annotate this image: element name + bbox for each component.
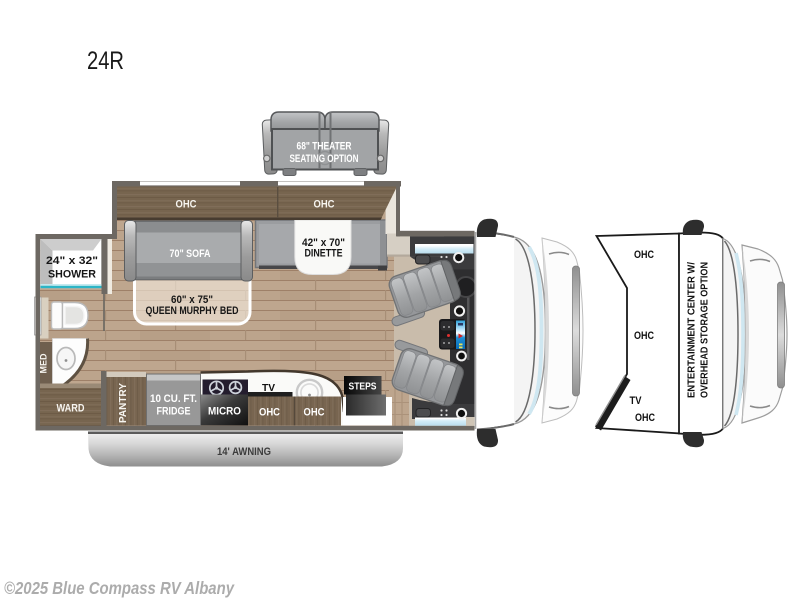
svg-text:TV: TV bbox=[262, 382, 275, 394]
svg-text:MED: MED bbox=[39, 353, 50, 373]
svg-text:OHC: OHC bbox=[304, 407, 325, 419]
svg-text:WARD: WARD bbox=[57, 403, 85, 415]
svg-text:OHC: OHC bbox=[634, 249, 654, 261]
svg-text:TV: TV bbox=[630, 395, 643, 407]
svg-text:OVERHEAD STORAGE OPTION: OVERHEAD STORAGE OPTION bbox=[699, 262, 711, 398]
svg-text:STEPS: STEPS bbox=[349, 381, 377, 393]
svg-text:OHC: OHC bbox=[314, 199, 335, 211]
svg-text:PANTRY: PANTRY bbox=[117, 383, 129, 423]
svg-text:68" THEATER: 68" THEATER bbox=[297, 141, 352, 153]
svg-text:ENTERTAINMENT CENTER W/: ENTERTAINMENT CENTER W/ bbox=[686, 262, 698, 398]
svg-text:DINETTE: DINETTE bbox=[305, 248, 343, 260]
svg-text:OHC: OHC bbox=[259, 407, 280, 419]
svg-text:SHOWER: SHOWER bbox=[48, 269, 96, 281]
svg-text:OHC: OHC bbox=[176, 199, 197, 211]
svg-text:OHC: OHC bbox=[634, 330, 654, 342]
svg-text:MICRO: MICRO bbox=[208, 406, 241, 418]
svg-text:SEATING OPTION: SEATING OPTION bbox=[290, 153, 359, 165]
svg-text:FRIDGE: FRIDGE bbox=[157, 406, 191, 418]
svg-text:24" x 32": 24" x 32" bbox=[46, 255, 98, 267]
svg-text:10 CU. FT.: 10 CU. FT. bbox=[150, 393, 197, 405]
svg-text:14' AWNING: 14' AWNING bbox=[217, 446, 271, 458]
svg-text:©2025 Blue Compass RV Albany: ©2025 Blue Compass RV Albany bbox=[4, 578, 235, 598]
svg-text:OHC: OHC bbox=[635, 412, 655, 424]
svg-text:70" SOFA: 70" SOFA bbox=[170, 248, 211, 260]
svg-text:QUEEN MURPHY BED: QUEEN MURPHY BED bbox=[146, 305, 239, 317]
svg-text:24R: 24R bbox=[87, 47, 124, 75]
